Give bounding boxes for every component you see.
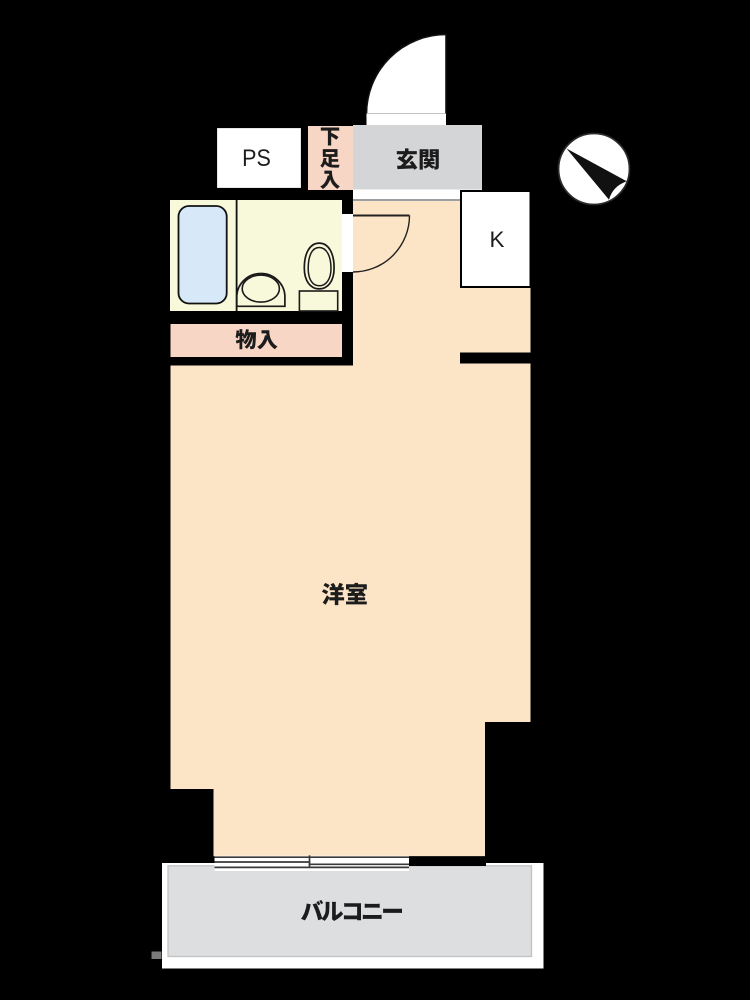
svg-text:PS: PS — [242, 145, 271, 172]
svg-text:K: K — [490, 227, 505, 252]
